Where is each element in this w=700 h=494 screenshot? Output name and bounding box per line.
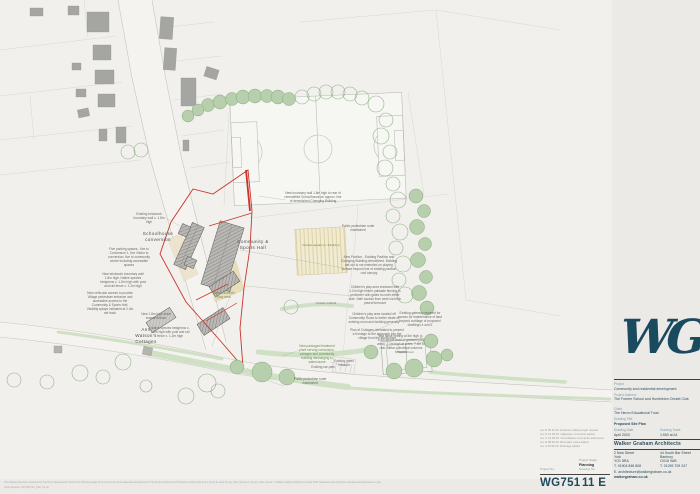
- revision-list: rev. E 29.10.20. Entrance railing length…: [540, 429, 612, 449]
- annotation-new-pavilion: New Pavilion - Existing Pavilion and Cha…: [340, 255, 398, 275]
- annotation-new-wall-hedge: New brickwork boundary wall 1.8m high. N…: [100, 272, 146, 288]
- label-schoolhouse-conversion: Schoolhouse conversion: [138, 231, 178, 243]
- annotation-existing-car-park: Existing car park: [308, 365, 338, 369]
- office2-line4: T. 01295 709 247: [660, 464, 687, 468]
- project-no-label: Project No.: [540, 468, 555, 472]
- revision-a: rev. A 05.06.20. Drainage added: [540, 445, 612, 449]
- annotation-parking-spaces: Five parking spaces - five to Conversion…: [107, 247, 151, 267]
- firm-rule-top: [614, 439, 700, 440]
- disclaimer-line2: Origin filename: WG751(011)_Plan_A1.pln: [4, 486, 534, 489]
- annotation-pedestrian-route-1: Public pedestrian route maintained: [338, 224, 378, 232]
- site-plan-canvas: [0, 0, 700, 494]
- project-number: WG751: [540, 476, 581, 490]
- firm-name: Walker Graham Architects: [614, 441, 681, 447]
- drawing-scale-value: 1:500 at A1: [660, 433, 678, 437]
- drawing-date-value: April 2020: [614, 433, 630, 437]
- number-block-rule: [540, 474, 610, 475]
- project-value: Community and residential development: [614, 387, 700, 391]
- disclaimer-line1: This drawing has been produced for The H…: [4, 481, 534, 484]
- annotation-native-hedgerow: Native species hedgerow c. 1.8m high wit…: [150, 326, 190, 338]
- drawing-title-value: Proposed Site Plan: [614, 422, 700, 426]
- project-address-value: The Former School and Humbleton Cricket …: [614, 397, 698, 401]
- firm-rule-bottom: [614, 449, 700, 450]
- annotation-boundary-wall-rear: New boundary wall 1.8m high to rear of r…: [284, 191, 342, 203]
- annotation-vehicular-access: New vehicular access to provide Village …: [86, 291, 134, 315]
- drawing-number: 11 E: [582, 476, 606, 490]
- walker-graham-logo: WG: [616, 314, 700, 361]
- client-label: Client: [614, 407, 622, 411]
- football-pitch: [230, 92, 406, 205]
- office1-line4: T. 01904 848 808: [614, 464, 641, 468]
- drawing-sheet: Schoolhouse conversion Community & Sport…: [0, 0, 700, 494]
- drawing-scale-label: Drawing Scale: [660, 428, 681, 432]
- annotation-existing-wall: Existing brickwork boundary wall c. 1.8m…: [132, 212, 166, 224]
- titleblock-rule-top: [614, 379, 700, 380]
- label-cricket-square: Cricket square (c. 23x23m): [302, 244, 340, 248]
- annotation-pedestrian-route-2: Public pedestrian route maintained: [290, 377, 330, 385]
- annotation-play-area-location: Children's play area located off Communi…: [348, 312, 400, 324]
- website: walkergraham.co.uk: [614, 475, 648, 479]
- annotation-play-area-fencing: Children's play area enclosed with 1.2m …: [348, 285, 402, 305]
- annotation-new-play-area: New Children's play area: [212, 291, 236, 299]
- annotation-existing-gateway: Existing gateway retained for access for…: [396, 311, 444, 327]
- project-address-label: Project Address: [614, 393, 636, 397]
- annotation-close-boarded-fence: New 1.8m high close boarded fence: [140, 312, 172, 320]
- drawing-title-label: Drawing Title: [614, 417, 632, 421]
- label-community-sports-hall: Community & Sports Hall: [235, 239, 271, 251]
- project-label: Project: [614, 382, 624, 386]
- email: E. architecture@walkergraham.co.uk: [614, 470, 671, 474]
- label-cricket-outfield: Cricket outfield: [306, 302, 346, 306]
- drawing-date-label: Drawing Date: [614, 428, 633, 432]
- client-value: The Heron Educational Trust: [614, 411, 700, 415]
- annotation-ball-strike-netting: Ball strike netting at 5m high (c. 4.5m …: [376, 334, 426, 354]
- drawing-no-label: Drawing No.: [579, 468, 596, 472]
